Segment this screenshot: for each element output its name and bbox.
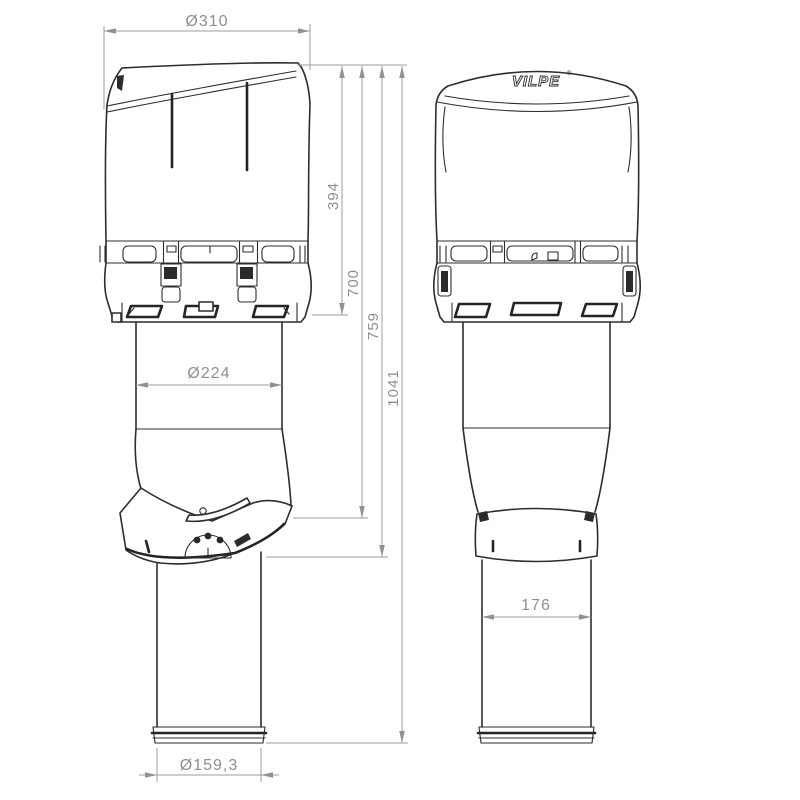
dim-label-cap-height: 394 (325, 182, 342, 210)
dim-label-outlet-diameter: Ø159,3 (180, 757, 238, 774)
dim-label-right-pipe-width: 176 (521, 597, 551, 614)
vilpe-logo: VILPE (512, 73, 560, 90)
registered-mark: ® (567, 70, 572, 77)
dim-label-pipe-diameter: Ø224 (187, 365, 230, 382)
collar-clip (478, 511, 489, 522)
right-pipe-end-rings (478, 727, 595, 743)
deflector-dot (217, 537, 224, 544)
dim-label-height-deflector-bottom: 759 (365, 312, 382, 340)
deflector-pivot (200, 508, 206, 514)
dim-label-cap-diameter: Ø310 (185, 13, 228, 30)
right-view: VILPE ® (434, 70, 640, 743)
deflector-dot (205, 533, 212, 540)
right-collar (475, 509, 597, 562)
left-view (100, 63, 311, 743)
vent-pipe-drawing: VILPE ® (0, 0, 800, 800)
deflector-dot (194, 537, 201, 544)
left-pipe-end-rings (152, 727, 266, 743)
technical-drawing-page: VILPE ® (0, 0, 800, 800)
dim-pipe-diameter: Ø224 (136, 365, 282, 385)
dim-outlet-diameter: Ø159,3 (139, 748, 279, 782)
deflector (120, 488, 292, 564)
collar-clip (584, 511, 595, 522)
dim-label-height-deflector-top: 700 (345, 269, 362, 297)
dim-label-total-height: 1041 (385, 369, 402, 406)
left-cap (100, 63, 311, 322)
left-lower-pipe (152, 552, 266, 743)
left-upper-pipe (135, 322, 291, 505)
dim-right-pipe-width: 176 (482, 597, 591, 617)
right-cap: VILPE ® (434, 70, 640, 322)
